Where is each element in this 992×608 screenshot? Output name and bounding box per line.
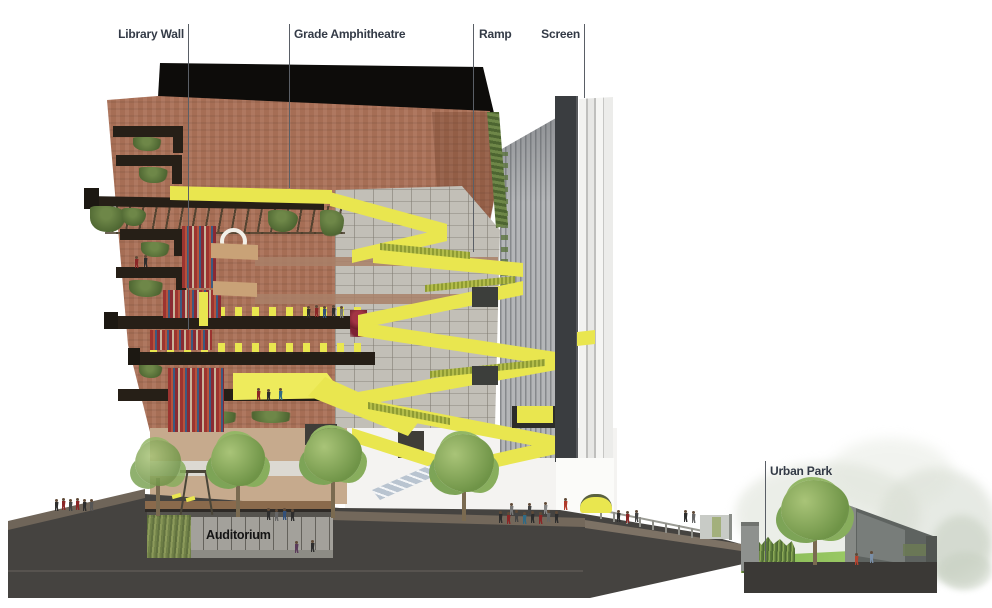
architectural-section-view: Library Wall Grade Amphitheatre Ramp Scr…	[0, 0, 992, 608]
bg-water-wash	[938, 552, 992, 590]
screen-dark-slab	[555, 96, 578, 462]
stool	[337, 343, 344, 354]
amphitheatre-seats	[163, 290, 221, 318]
label-grade-amphitheatre: Grade Amphitheatre	[294, 27, 405, 41]
person	[514, 510, 519, 522]
leader-line-ramp	[473, 24, 474, 252]
railing-post	[665, 523, 667, 533]
leader-line-urban-park	[765, 461, 766, 561]
railing-post	[652, 520, 654, 530]
person	[134, 256, 139, 268]
tree-canopy	[304, 428, 362, 482]
ramp-pod	[472, 366, 498, 385]
person	[634, 510, 639, 522]
person	[616, 510, 621, 522]
stool	[303, 343, 310, 354]
person	[498, 511, 503, 523]
tree-canopy	[135, 440, 181, 486]
park-ground-mass	[744, 562, 937, 593]
stool	[354, 343, 361, 354]
leader-line-library-wall	[188, 24, 189, 330]
person	[683, 510, 688, 522]
floor-tip	[128, 348, 140, 365]
person	[322, 306, 327, 318]
ground-seam	[8, 570, 583, 572]
swing-crossbar	[180, 470, 213, 473]
screen-white-strips	[579, 97, 613, 461]
bench-step	[213, 281, 257, 297]
railing-post	[691, 528, 693, 538]
person	[274, 509, 279, 521]
stool	[252, 343, 259, 354]
person	[266, 508, 271, 520]
person	[563, 498, 568, 510]
label-auditorium: Auditorium	[206, 528, 271, 542]
stool	[286, 307, 293, 318]
railing-post	[613, 512, 615, 522]
person	[89, 499, 94, 511]
stool	[286, 343, 293, 354]
person	[82, 499, 87, 511]
person	[869, 551, 874, 563]
person	[143, 255, 148, 267]
stool	[320, 343, 327, 354]
person	[61, 498, 66, 510]
park-tree-canopy	[781, 480, 849, 540]
label-screen: Screen	[498, 27, 580, 41]
render-layers	[0, 0, 992, 608]
person	[54, 499, 59, 511]
person	[543, 502, 548, 514]
person	[290, 509, 295, 521]
amphitheatre-seats	[168, 368, 224, 432]
balcony-slab-leg	[172, 155, 182, 184]
yellow-kiosk	[580, 494, 612, 513]
stool	[218, 343, 225, 354]
person	[625, 511, 630, 523]
stool	[235, 343, 242, 354]
leader-line-grade-amphitheatre	[289, 24, 290, 188]
person	[278, 388, 283, 400]
label-urban-park: Urban Park	[770, 464, 832, 478]
person	[306, 306, 311, 318]
person	[68, 499, 73, 511]
guard-wall-green	[712, 517, 721, 537]
stair-strip	[199, 292, 208, 326]
person	[266, 389, 271, 401]
person	[75, 498, 80, 510]
floor-tip	[104, 312, 118, 329]
stool	[269, 307, 276, 318]
person	[310, 540, 315, 552]
ramp-u-bracket	[512, 406, 558, 428]
stool	[235, 307, 242, 318]
person	[331, 305, 336, 317]
amphitheatre-seats	[150, 330, 212, 350]
bench-step	[211, 243, 258, 260]
person	[314, 305, 319, 317]
ramp-tab	[577, 330, 595, 346]
underground-mass	[8, 494, 752, 598]
tree-canopy	[211, 434, 265, 486]
leader-line-screen	[584, 24, 585, 98]
person	[527, 503, 532, 515]
screen-slab-highlight	[576, 96, 578, 462]
railing-post	[639, 517, 641, 527]
person	[554, 511, 559, 523]
ramp-pod	[472, 287, 498, 307]
balcony-slab-leg	[173, 126, 183, 153]
label-library-wall: Library Wall	[60, 27, 184, 41]
person	[294, 541, 299, 553]
park-wall-left-cap	[741, 522, 759, 526]
guard-wall-edge	[729, 514, 732, 540]
person	[256, 388, 261, 400]
tree-canopy	[434, 434, 494, 492]
person	[854, 553, 859, 565]
stool	[252, 307, 259, 318]
stool	[269, 343, 276, 354]
person	[691, 511, 696, 523]
auditorium-grass	[147, 515, 191, 558]
person	[339, 306, 344, 318]
person	[509, 503, 514, 515]
person	[282, 508, 287, 520]
railing-post	[678, 525, 680, 535]
